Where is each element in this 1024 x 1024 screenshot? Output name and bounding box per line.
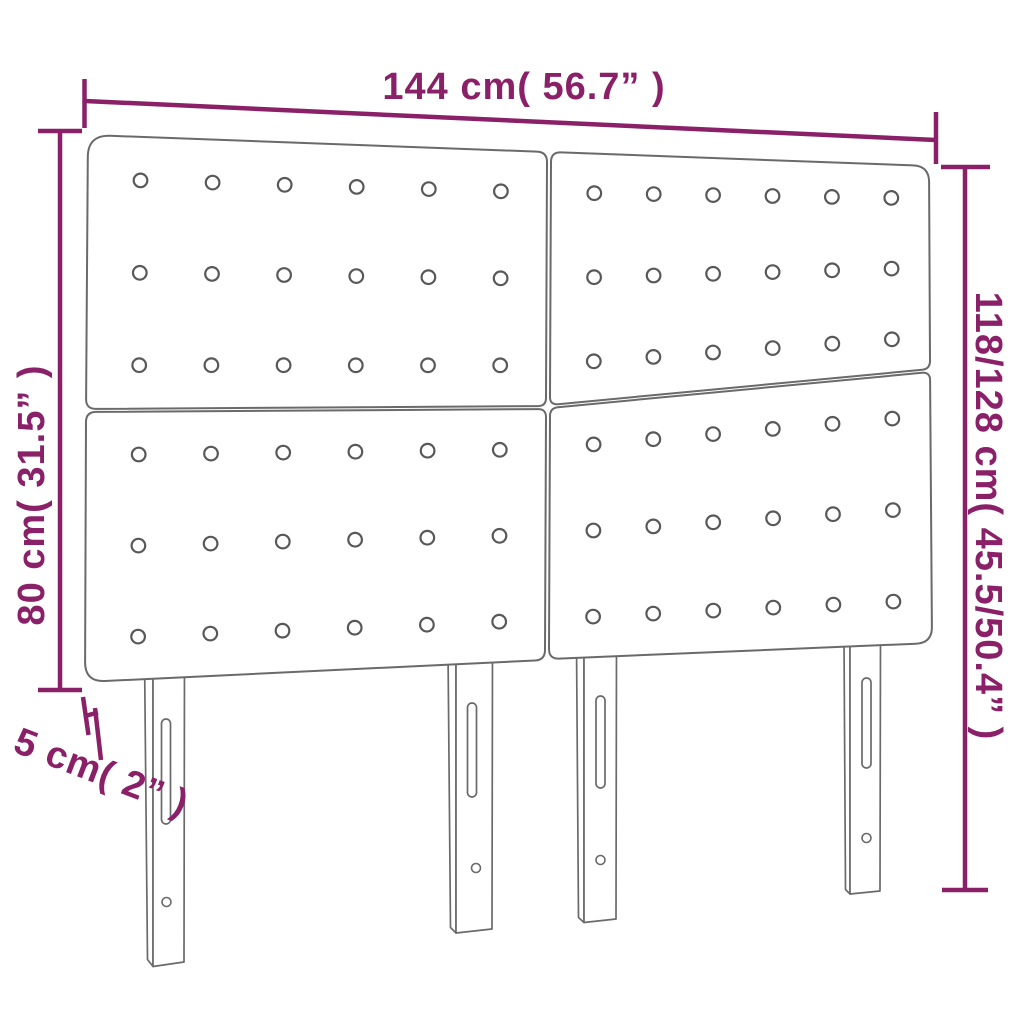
tufting-button [706, 188, 720, 202]
leg-4 [844, 640, 881, 894]
tufting-button [887, 595, 901, 609]
tufting-button [767, 601, 781, 615]
tufting-button [885, 333, 899, 347]
tufting-button [766, 341, 780, 355]
height-left-dimension-label: 80 cm( 31.5” ) [11, 364, 53, 625]
tufting-button [349, 359, 363, 373]
tufting-button [204, 537, 218, 551]
leg-2-side-face [448, 650, 456, 933]
tufting-button [494, 272, 508, 286]
tufting-button [422, 270, 436, 284]
headboard-panels [85, 136, 932, 681]
tufting-button [348, 533, 362, 547]
tufting-button [587, 438, 601, 452]
dimension-height-left: 80 cm( 31.5” ) [11, 131, 82, 690]
leg-3-side-face [577, 645, 585, 923]
tufting-button [277, 268, 291, 282]
tufting-button [205, 358, 219, 372]
tufting-button [827, 598, 841, 612]
width-dimension-label: 144 cm( 56.7” ) [382, 66, 665, 108]
tufting-button [885, 262, 899, 276]
tufting-button [706, 516, 720, 530]
tufting-button [132, 448, 146, 462]
tufting-button [826, 417, 840, 431]
tufting-button [493, 359, 507, 373]
tufting-button [349, 445, 363, 459]
tufting-button [885, 191, 899, 205]
dimension-height-right: 118/128 cm( 45.5/50.4” ) [941, 167, 1009, 890]
tufting-button [421, 444, 435, 458]
tufting-button [766, 265, 780, 279]
tufting-button [766, 422, 780, 436]
headboard-panel-3 [85, 409, 546, 681]
tufting-button [278, 178, 292, 192]
tufting-button [204, 627, 218, 641]
tufting-button [205, 267, 219, 281]
tufting-button [707, 604, 721, 618]
tufting-button [276, 535, 290, 549]
tufting-button [825, 190, 839, 204]
tufting-button [825, 264, 839, 278]
tufting-button [586, 610, 600, 624]
tufting-button [647, 432, 661, 446]
headboard-legs [145, 640, 881, 967]
tufting-button [587, 270, 601, 284]
leg-4-screw-hole [862, 834, 871, 843]
tufting-button [706, 427, 720, 441]
leg-3 [577, 645, 617, 923]
tufting-button [766, 512, 780, 526]
tufting-button [493, 529, 507, 543]
leg-2-slot [468, 703, 477, 797]
leg-3-screw-hole [596, 856, 605, 865]
tufting-button [277, 358, 291, 372]
tufting-button [350, 269, 364, 283]
tufting-button [647, 269, 661, 283]
tufting-button [276, 446, 290, 460]
tufting-button [494, 185, 508, 199]
tufting-button [131, 630, 145, 644]
tufting-button [492, 615, 506, 629]
leg-4-slot [862, 678, 871, 768]
tufting-button [826, 507, 840, 521]
leg-4-side-face [844, 640, 850, 894]
tufting-button [206, 176, 220, 190]
tufting-button [348, 621, 362, 635]
tufting-button [826, 337, 840, 351]
tufting-button [276, 624, 290, 638]
leg-2-screw-hole [472, 864, 481, 873]
leg-2 [448, 650, 493, 933]
tufting-button [133, 266, 147, 280]
tufting-button [134, 174, 148, 188]
height-right-dimension-label: 118/128 cm( 45.5/50.4” ) [967, 292, 1009, 741]
tufting-button [204, 447, 218, 461]
tufting-button [646, 607, 660, 621]
headboard-panel-2 [550, 152, 930, 404]
diagram-canvas: 144 cm( 56.7” ) 80 cm( 31.5” ) 118/128 c… [0, 0, 1024, 1024]
leg-1-screw-hole [162, 898, 171, 907]
tufting-button [421, 359, 435, 373]
tufting-button [647, 350, 661, 364]
headboard-panel-1 [86, 136, 547, 409]
tufting-button [350, 180, 364, 194]
tufting-button [132, 539, 146, 553]
tufting-button [706, 267, 720, 281]
tufting-button [886, 412, 900, 426]
tufting-button [886, 503, 900, 517]
tufting-button [493, 443, 507, 457]
tufting-button [647, 520, 661, 534]
tufting-button [422, 182, 436, 196]
tufting-button [647, 187, 661, 201]
headboard-dimension-diagram: 144 cm( 56.7” ) 80 cm( 31.5” ) 118/128 c… [0, 0, 1024, 1024]
tufting-button [766, 189, 780, 203]
tufting-button [706, 346, 720, 360]
tufting-button [588, 186, 602, 200]
tufting-button [420, 618, 434, 632]
tufting-button [132, 358, 146, 372]
tufting-button [587, 355, 601, 369]
tufting-button [587, 524, 601, 538]
leg-3-slot [596, 696, 605, 788]
headboard-panel-4 [549, 373, 932, 659]
tufting-button [421, 531, 435, 545]
